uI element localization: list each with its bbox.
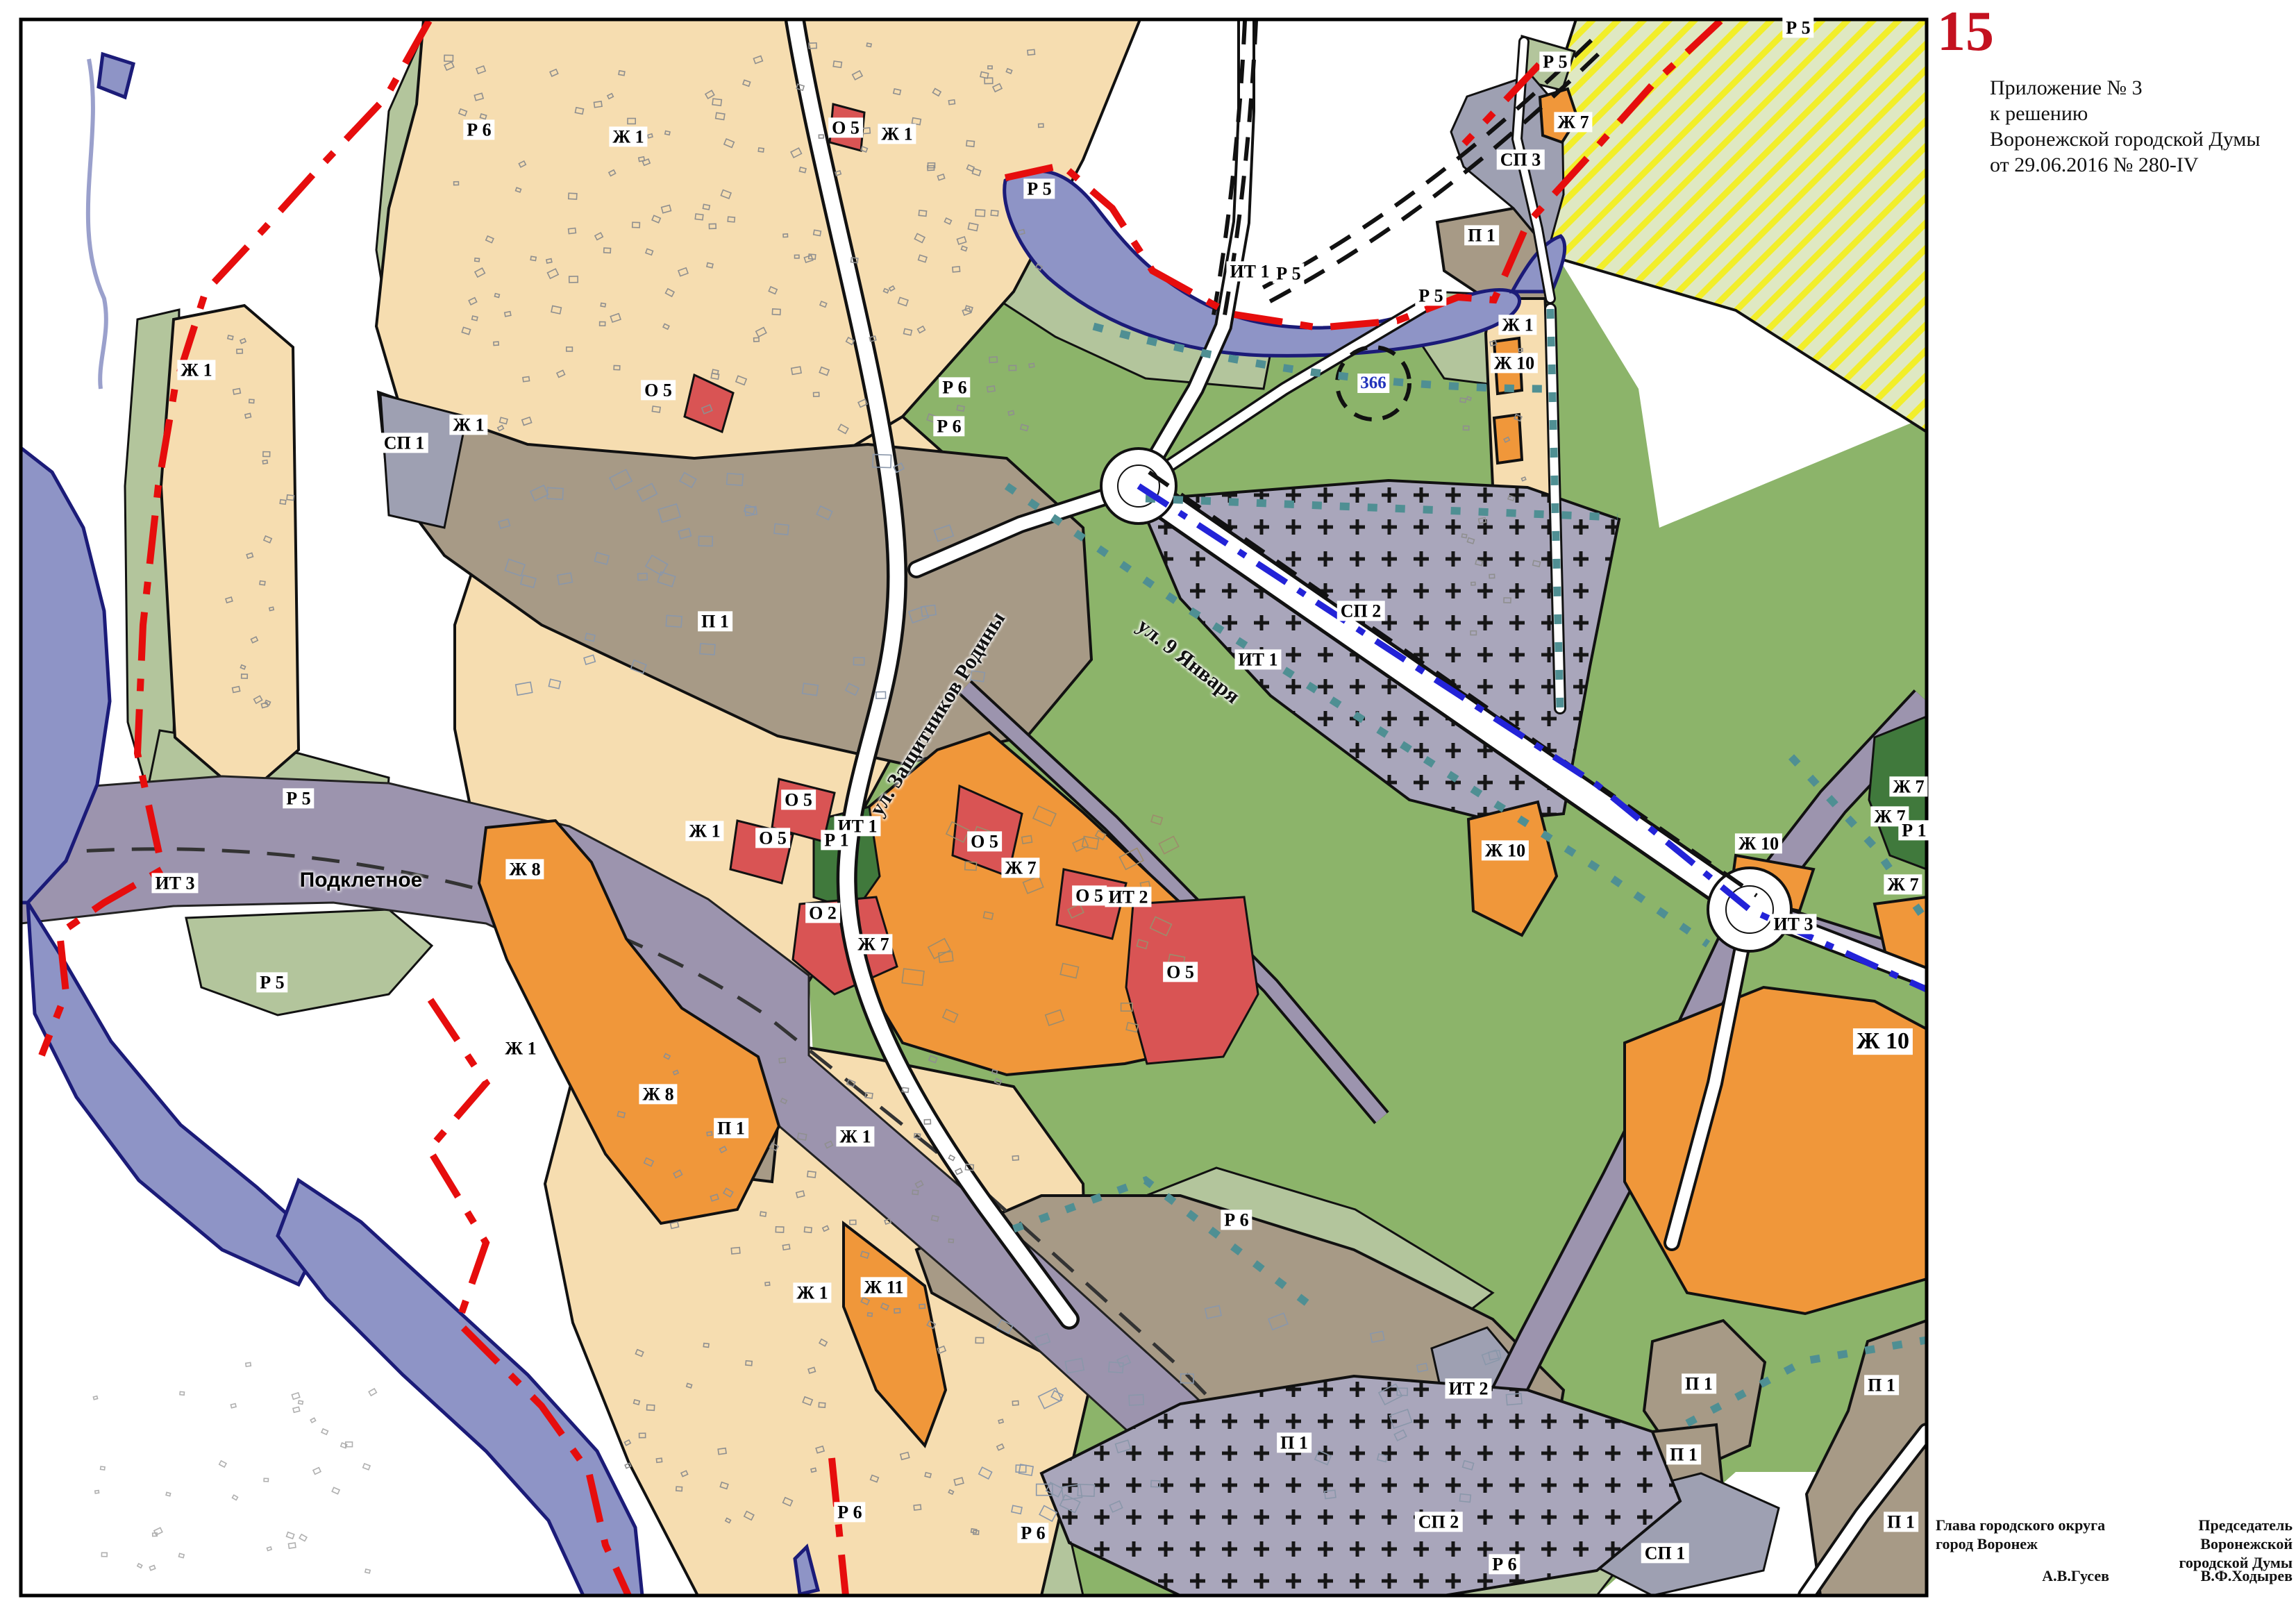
zone-label: Р 5 xyxy=(1415,285,1446,305)
zone-label: Ж 1 xyxy=(449,415,487,435)
zone-label: ИТ 3 xyxy=(151,873,198,893)
zone-label: Ж 10 xyxy=(1482,840,1529,860)
zone-label: Ж 7 xyxy=(1001,857,1039,878)
zone-label: Р 1 xyxy=(1898,820,1929,840)
zone-label: Ж 10 xyxy=(1735,833,1782,853)
zone-label: Р 6 xyxy=(1489,1554,1520,1574)
zone-label: Ж 8 xyxy=(505,859,544,879)
zone-label: Ж 7 xyxy=(854,934,892,954)
map-sheet: Р 6Ж 1О 5Ж 1Р 5Р 6Р 6ИТ 1Р 5Р 5П 1СП 3Ж … xyxy=(0,0,2296,1624)
zone-label: Р 1 xyxy=(821,830,852,850)
header-line: Воронежской городской Думы xyxy=(1990,126,2261,152)
zone-label: О 5 xyxy=(1072,885,1107,905)
zone-label: Р 6 xyxy=(834,1502,865,1522)
zone-label: Р 6 xyxy=(933,416,964,436)
zone-label: Ж 1 xyxy=(836,1126,874,1146)
zone-label: ИТ 1 xyxy=(1234,649,1281,669)
zone-label: Ж 11 xyxy=(861,1277,907,1297)
zone-label: Р 5 xyxy=(1539,51,1570,72)
zone-label: Ж 1 xyxy=(609,126,647,147)
zone-label: Р 5 xyxy=(256,972,287,992)
zone-label: Ж 1 xyxy=(177,360,215,380)
header-line: к решению xyxy=(1990,101,2261,126)
zone-label: ИТ 2 xyxy=(1105,887,1151,907)
zone-label: П 1 xyxy=(1864,1375,1899,1395)
zone-label: СП 2 xyxy=(1415,1512,1463,1532)
zone-label: П 1 xyxy=(698,611,732,631)
zone-label: ИТ 2 xyxy=(1445,1378,1491,1398)
zone-label: Ж 10 xyxy=(1853,1028,1913,1055)
zone-label: Р 5 xyxy=(1273,263,1304,283)
zone-label: П 1 xyxy=(1277,1432,1312,1453)
zone-label: О 5 xyxy=(755,828,790,848)
zone-label: О 5 xyxy=(828,117,863,137)
zone-label: О 5 xyxy=(641,380,676,400)
zone-label: СП 2 xyxy=(1337,601,1385,621)
zone-label: Р 6 xyxy=(463,119,494,140)
zone-label: Ж 7 xyxy=(1554,112,1592,132)
zone-label: Ж 7 xyxy=(1884,874,1922,894)
signature-left-name: А.В.Гусев xyxy=(1936,1566,2109,1585)
zone-label: Ж 1 xyxy=(501,1038,539,1058)
zone-label: Ж 1 xyxy=(878,124,916,144)
signature-text: Глава городского округа xyxy=(1936,1516,2123,1534)
zone-label: СП 1 xyxy=(380,433,428,453)
zone-label: Ж 1 xyxy=(1498,315,1536,335)
signature-left-title: Глава городского округа город Воронеж xyxy=(1936,1516,2123,1553)
zone-label: О 5 xyxy=(781,789,816,810)
zone-label: СП 3 xyxy=(1497,149,1545,169)
zone-label: Р 5 xyxy=(1782,17,1813,37)
zone-label: ИТ 3 xyxy=(1770,914,1816,934)
zone-label: СП 1 xyxy=(1641,1543,1689,1563)
zone-label: П 1 xyxy=(1682,1373,1716,1393)
zone-label: О 2 xyxy=(805,903,840,923)
zone-label: Р 6 xyxy=(1221,1209,1252,1230)
signature-right-title: Председатель Воронежской городской Думы xyxy=(2108,1516,2293,1572)
zone-label: Ж 8 xyxy=(639,1084,677,1104)
zone-label: Р 5 xyxy=(1023,178,1055,199)
zone-label: П 1 xyxy=(1884,1512,1918,1532)
document-header: Приложение № 3 к решению Воронежской гор… xyxy=(1990,75,2261,178)
zone-label: О 5 xyxy=(1163,962,1198,982)
zone-label: О 5 xyxy=(967,831,1002,851)
signature-text: город Воронеж xyxy=(1936,1534,2123,1553)
landmark-label: 366 xyxy=(1357,374,1389,393)
zone-label: Р 6 xyxy=(939,377,970,397)
zone-label: Р 5 xyxy=(283,788,314,808)
zone-label: Ж 10 xyxy=(1491,353,1538,373)
signature-text: Председатель Воронежской xyxy=(2108,1516,2293,1553)
signature-right-name: В.Ф.Ходырев xyxy=(2119,1566,2293,1585)
zone-label: П 1 xyxy=(1666,1444,1701,1464)
zone-label: Ж 1 xyxy=(793,1282,831,1303)
zoning-map-canvas xyxy=(0,0,2296,1624)
zone-label: Р 6 xyxy=(1017,1523,1048,1543)
zone-label: Ж 7 xyxy=(1889,776,1927,796)
header-line: Приложение № 3 xyxy=(1990,75,2261,101)
zone-label: П 1 xyxy=(714,1118,748,1138)
zone-label: ИТ 1 xyxy=(1226,261,1273,281)
zone-label: П 1 xyxy=(1464,225,1499,245)
zone-label: Ж 1 xyxy=(685,821,723,841)
settlement-label: Подклетное xyxy=(300,869,423,892)
header-line: от 29.06.2016 № 280-IV xyxy=(1990,152,2261,178)
sheet-number: 15 xyxy=(1937,3,1994,60)
